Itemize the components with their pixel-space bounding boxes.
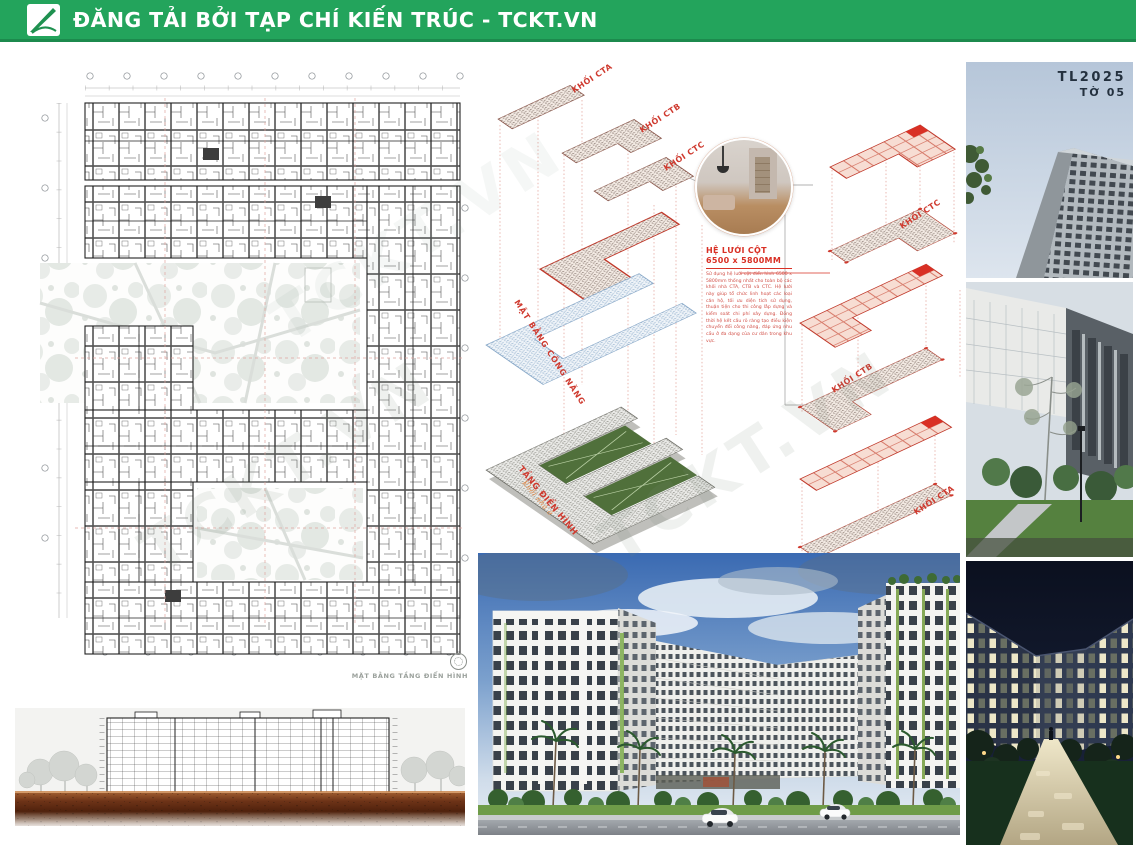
plan-caption: MẶT BẰNG TẦNG ĐIỂN HÌNH bbox=[340, 672, 468, 680]
note-body: Sử dụng hệ lưới cột điển hình 6500 x 580… bbox=[706, 272, 792, 345]
path-light-icon bbox=[982, 751, 986, 755]
sheet-tag: TL2025 TỜ 05 bbox=[1058, 70, 1126, 99]
grid-plane-ctc bbox=[830, 125, 955, 191]
typical-floor-plan-drawing bbox=[15, 58, 470, 658]
sheet-code: TL2025 bbox=[1058, 70, 1126, 85]
presentation-board: ĐĂNG TẢI BỞI TẠP CHÍ KIẾN TRÚC - TCKT.VN… bbox=[0, 0, 1136, 852]
note-title-line2: 6500 x 5800MM bbox=[706, 256, 792, 266]
header-bar: ĐĂNG TẢI BỞI TẠP CHÍ KIẾN TRÚC - TCKT.VN bbox=[0, 0, 1136, 42]
stamp-icon bbox=[450, 653, 467, 670]
interior-sofa bbox=[703, 195, 735, 210]
slab-cta bbox=[498, 85, 584, 128]
main-render bbox=[478, 553, 960, 835]
interior-inset-photo bbox=[695, 138, 793, 236]
photo-building-sky: TL2025 TỜ 05 bbox=[966, 62, 1133, 278]
elevation-drawing bbox=[15, 688, 465, 850]
elevation-building bbox=[102, 710, 395, 792]
interior-shelf bbox=[755, 157, 770, 193]
plan-cta bbox=[797, 482, 954, 555]
photo-courtyard-day bbox=[966, 282, 1133, 557]
typical-floor-model bbox=[486, 407, 731, 553]
grid-plane-cta bbox=[800, 416, 952, 490]
path-light-icon bbox=[1116, 755, 1120, 759]
label-khoi-cta: KHỐI CTA bbox=[569, 59, 615, 94]
slab-ctc bbox=[594, 157, 694, 210]
header-title: ĐĂNG TẢI BỞI TẠP CHÍ KIẾN TRÚC - TCKT.VN bbox=[73, 8, 598, 32]
column-grid-note: HỆ LƯỚI CỘT 6500 x 5800MM Sử dụng hệ lướ… bbox=[706, 246, 792, 345]
plan-ctc bbox=[827, 207, 958, 277]
sheet-number: TỜ 05 bbox=[1058, 86, 1126, 99]
pedestrian bbox=[1049, 727, 1053, 740]
tckt-logo-icon bbox=[27, 4, 60, 36]
elevation-ground bbox=[15, 792, 465, 838]
grid-plane-ctb bbox=[800, 264, 961, 347]
label-khoi-ctb: KHỐI CTB bbox=[637, 99, 683, 135]
photo-courtyard-night bbox=[966, 561, 1133, 845]
pendant-lamp-icon bbox=[722, 146, 724, 167]
note-title-line1: HỆ LƯỚI CỘT bbox=[706, 246, 792, 256]
